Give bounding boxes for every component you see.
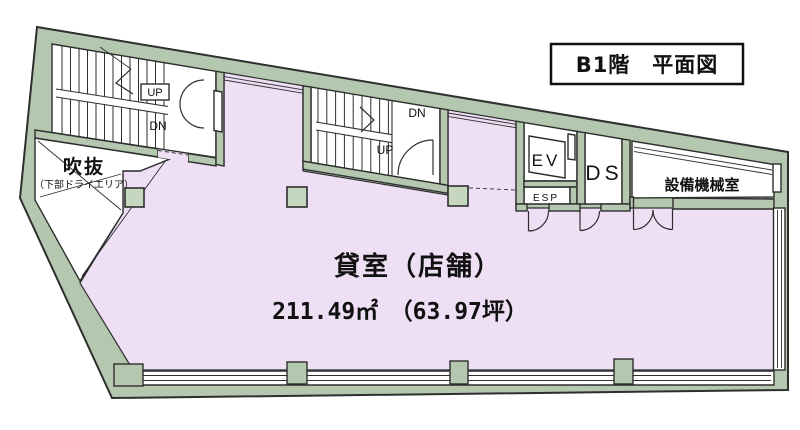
machine-room-label: 設備機械室	[664, 176, 739, 194]
stair-center-up-label: UP	[377, 143, 394, 157]
title-box: B1階 平面図	[551, 44, 743, 84]
column	[448, 186, 468, 206]
main-room-area-label: 211.49㎡ （63.97坪）	[272, 298, 528, 325]
elevator-label: EV	[532, 151, 561, 170]
main-room-label: 貸室（店舗）	[333, 251, 502, 282]
column	[287, 187, 307, 207]
floor-plan-drawing: UP DN DN UP 吹抜 （下部ドライエリア） EV ESP DS 設備機械…	[0, 0, 800, 430]
esp-label: ESP	[533, 193, 559, 204]
duct-space-label: DS	[585, 162, 622, 185]
page-title: B1階 平面図	[576, 53, 719, 77]
floor-plan-page: UP DN DN UP 吹抜 （下部ドライエリア） EV ESP DS 設備機械…	[0, 0, 800, 430]
stair-left-up-label: UP	[147, 87, 162, 99]
void-note-label: （下部ドライエリア）	[34, 178, 134, 191]
stair-left-down-label: DN	[149, 119, 166, 133]
right-window-band	[774, 208, 786, 370]
stair-center-down-label: DN	[408, 106, 425, 120]
void-label: 吹抜	[63, 155, 105, 178]
